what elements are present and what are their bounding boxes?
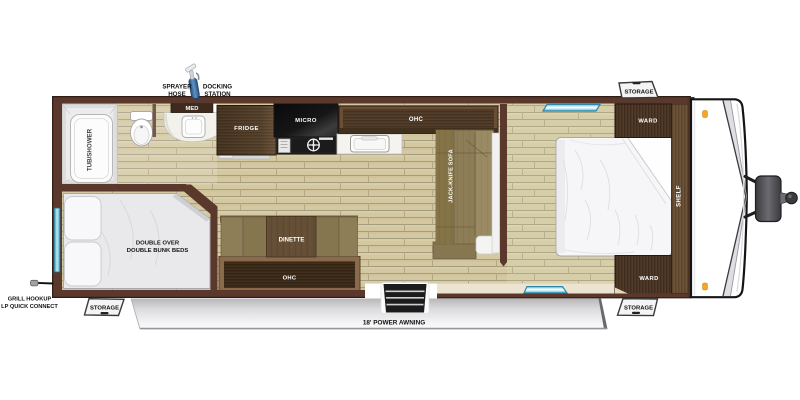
svg-text:LP QUICK CONNECT: LP QUICK CONNECT — [1, 304, 58, 310]
svg-text:DINETTE: DINETTE — [279, 238, 305, 244]
svg-text:DOCKING: DOCKING — [203, 84, 232, 91]
svg-text:MICRO: MICRO — [295, 118, 317, 124]
svg-text:SPRAYER: SPRAYER — [162, 84, 192, 91]
svg-text:JACK-KNIFE SOFA: JACK-KNIFE SOFA — [449, 149, 455, 203]
svg-text:STORAGE: STORAGE — [90, 306, 119, 312]
svg-text:OHC: OHC — [283, 276, 297, 282]
svg-text:DOUBLE BUNK BEDS: DOUBLE BUNK BEDS — [127, 248, 189, 254]
svg-text:18' POWER AWNING: 18' POWER AWNING — [363, 320, 425, 327]
svg-text:STORAGE: STORAGE — [624, 306, 653, 312]
svg-text:GRILL HOOKUP: GRILL HOOKUP — [8, 297, 52, 303]
svg-text:STATION: STATION — [204, 91, 231, 98]
svg-text:HOSE: HOSE — [168, 91, 186, 98]
svg-text:MED: MED — [186, 106, 199, 112]
svg-text:WARD: WARD — [638, 119, 657, 125]
svg-text:FRIDGE: FRIDGE — [234, 126, 259, 132]
svg-text:SHELF: SHELF — [677, 185, 683, 207]
svg-text:STORAGE: STORAGE — [624, 90, 653, 96]
svg-text:DOUBLE OVER: DOUBLE OVER — [136, 241, 180, 247]
svg-text:OHC: OHC — [409, 117, 424, 123]
svg-text:WARD: WARD — [639, 276, 658, 282]
